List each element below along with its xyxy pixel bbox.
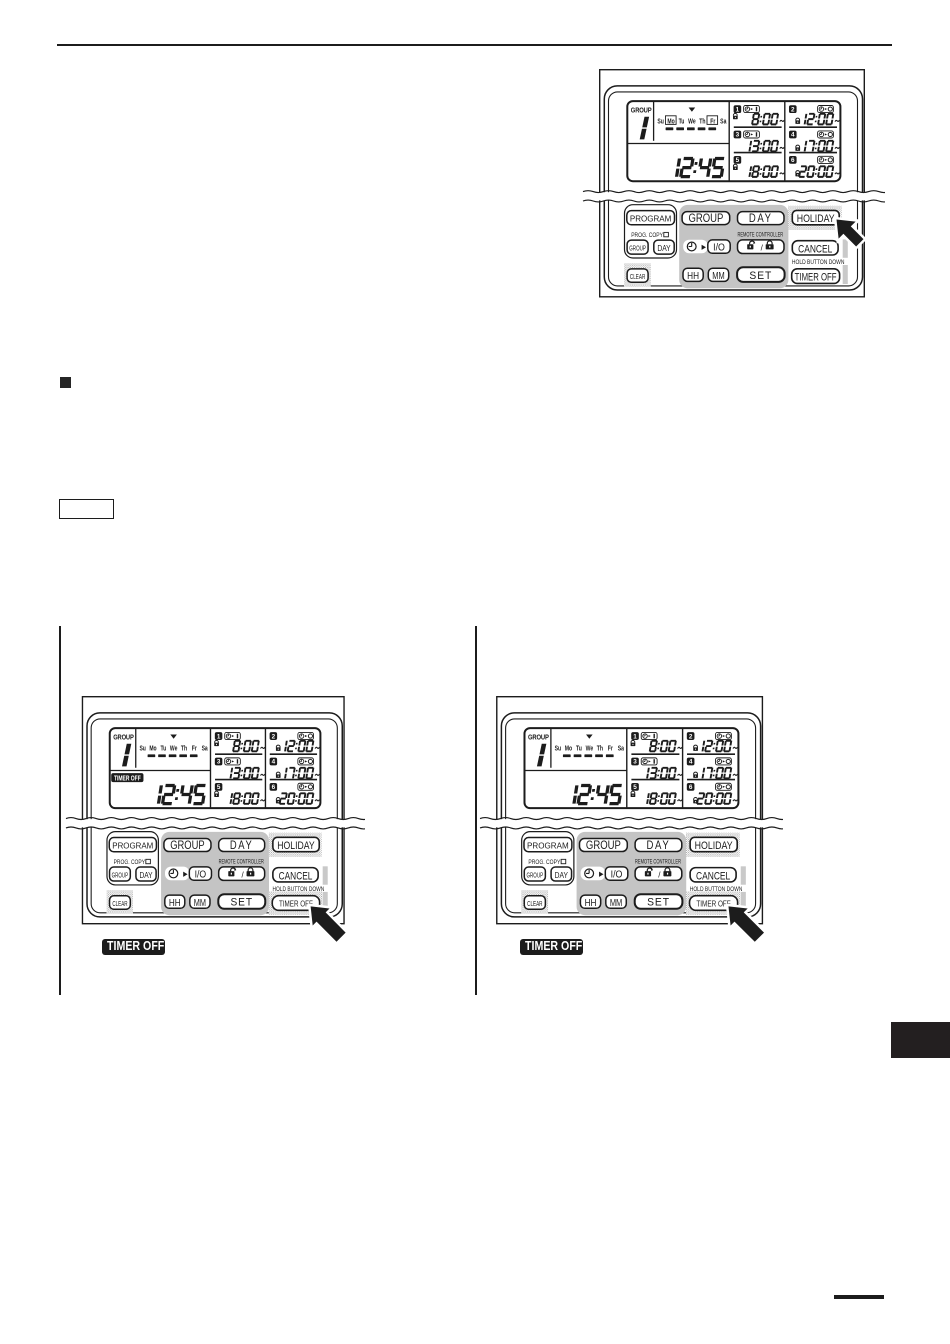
svg-text:TIMER OFF: TIMER OFF (795, 270, 837, 283)
svg-text:GROUP: GROUP (170, 839, 204, 852)
svg-text:HOLIDAY: HOLIDAY (277, 840, 315, 852)
svg-text:Th: Th (181, 746, 187, 753)
svg-text:Su: Su (555, 746, 562, 753)
svg-text:GROUP: GROUP (526, 872, 543, 880)
svg-text:Su: Su (140, 746, 147, 753)
svg-text:I/O: I/O (611, 869, 623, 879)
svg-text:GROUP: GROUP (528, 734, 550, 742)
svg-text:4: 4 (791, 131, 795, 138)
svg-text:Mo: Mo (565, 746, 573, 753)
svg-text:2: 2 (791, 106, 795, 113)
svg-text:GROUP: GROUP (586, 839, 621, 852)
svg-text:We: We (170, 746, 178, 753)
svg-text:Tu: Tu (679, 118, 685, 125)
svg-text:HH: HH (687, 270, 699, 281)
svg-text:HH: HH (169, 897, 181, 908)
svg-text:We: We (585, 746, 593, 753)
svg-text:REMOTE CONTROLLER: REMOTE CONTROLLER (737, 231, 783, 238)
svg-text:6: 6 (791, 157, 795, 164)
svg-text:DAY: DAY (555, 870, 568, 880)
svg-text:3: 3 (217, 759, 221, 766)
svg-text:Th: Th (699, 118, 705, 125)
svg-text:SET: SET (231, 896, 254, 909)
svg-text:GROUP: GROUP (113, 734, 134, 742)
svg-text:4: 4 (272, 759, 276, 766)
svg-text:REMOTE CONTROLLER: REMOTE CONTROLLER (219, 859, 264, 866)
svg-text:MM: MM (194, 897, 206, 908)
svg-text:Tu: Tu (576, 746, 582, 753)
svg-text:Sa: Sa (202, 746, 209, 753)
svg-text:REMOTE CONTROLLER: REMOTE CONTROLLER (635, 859, 681, 866)
svg-text:6: 6 (272, 784, 276, 791)
svg-text:DAY: DAY (646, 839, 670, 852)
svg-text:2: 2 (689, 733, 693, 740)
svg-text:GROUP: GROUP (631, 107, 652, 115)
svg-text:4: 4 (689, 759, 693, 766)
svg-text:2: 2 (272, 733, 276, 740)
svg-text:CANCEL: CANCEL (279, 870, 313, 883)
svg-text:Sa: Sa (618, 746, 625, 753)
svg-text:HH: HH (584, 897, 596, 908)
svg-text:DAY: DAY (230, 839, 253, 852)
svg-text:GROUP: GROUP (112, 872, 129, 881)
svg-text:TIMER OFF: TIMER OFF (114, 775, 141, 783)
svg-text:Fr: Fr (608, 746, 614, 753)
svg-text:1: 1 (736, 106, 740, 113)
svg-text:HOLIDAY: HOLIDAY (695, 840, 733, 852)
svg-text:PROGRAM: PROGRAM (630, 214, 672, 223)
svg-text:1: 1 (633, 733, 637, 740)
svg-text:3: 3 (633, 759, 637, 766)
svg-text:Fr: Fr (192, 746, 198, 753)
svg-text:DAY: DAY (657, 243, 670, 253)
svg-text:GROUP: GROUP (629, 244, 646, 252)
svg-text:6: 6 (689, 784, 693, 791)
svg-text:SET: SET (647, 896, 670, 908)
svg-text:PROG. COPY: PROG. COPY (631, 232, 663, 239)
svg-text:3: 3 (736, 131, 740, 138)
svg-text:DAY: DAY (749, 212, 773, 225)
svg-text:MM: MM (712, 270, 724, 281)
svg-text:PROG. COPY: PROG. COPY (114, 860, 145, 867)
svg-text:MM: MM (610, 897, 622, 908)
svg-text:HOLIDAY: HOLIDAY (797, 213, 835, 225)
svg-text:Sa: Sa (720, 118, 727, 125)
svg-text:PROGRAM: PROGRAM (112, 841, 153, 850)
svg-text:CANCEL: CANCEL (696, 870, 731, 882)
svg-text:DAY: DAY (140, 870, 153, 880)
svg-text:1: 1 (217, 733, 221, 740)
svg-text:SET: SET (749, 269, 772, 281)
svg-text:GROUP: GROUP (688, 212, 723, 225)
svg-text:5: 5 (633, 784, 637, 791)
svg-text:Tu: Tu (161, 746, 167, 753)
svg-text:CLEAR: CLEAR (527, 901, 543, 908)
svg-text:I/O: I/O (195, 869, 207, 880)
svg-text:We: We (688, 118, 696, 125)
svg-text:HOLD BUTTON DOWN: HOLD BUTTON DOWN (792, 259, 844, 266)
svg-text:I/O: I/O (713, 242, 725, 253)
svg-text:5: 5 (736, 157, 740, 164)
svg-text:Th: Th (597, 746, 603, 753)
svg-text:CLEAR: CLEAR (630, 274, 646, 281)
svg-text:CLEAR: CLEAR (113, 901, 129, 908)
svg-text:Su: Su (657, 118, 664, 125)
svg-text:CANCEL: CANCEL (798, 243, 833, 256)
svg-text:PROG. COPY: PROG. COPY (528, 860, 560, 867)
svg-text:5: 5 (217, 784, 221, 791)
svg-text:Mo: Mo (150, 746, 158, 753)
svg-text:PROGRAM: PROGRAM (527, 841, 569, 850)
